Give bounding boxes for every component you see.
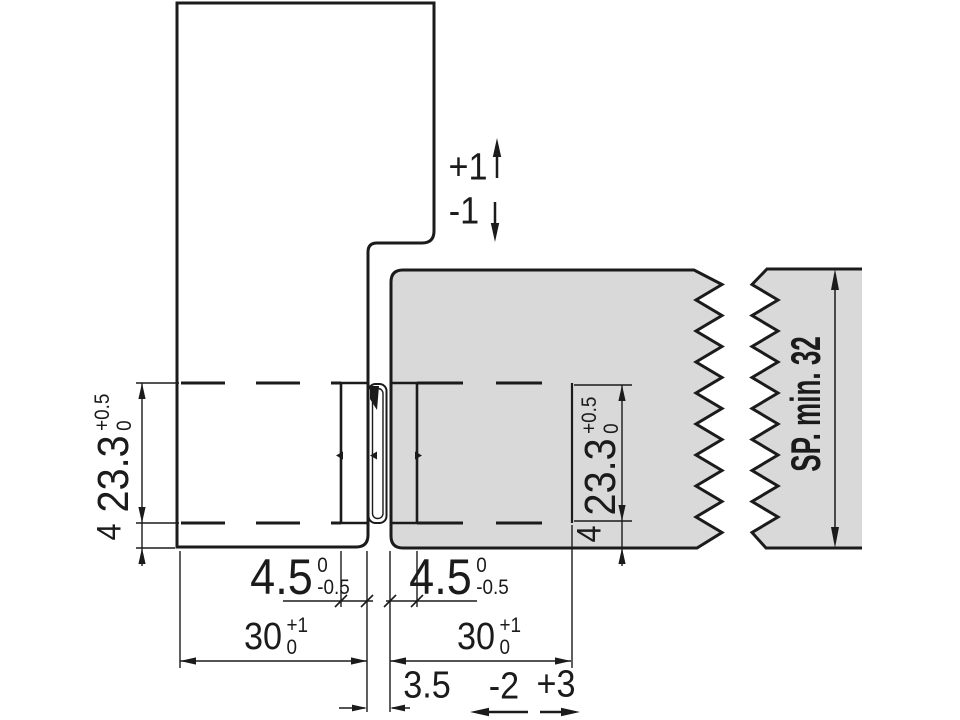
value: 3.5: [403, 665, 451, 708]
connector-profile-outer: [369, 384, 387, 523]
left-groove-height-label: 23.3 +0.5 0: [89, 394, 139, 513]
min-thickness-label: SP. min. 32: [782, 336, 830, 472]
left-width-arrow-l: [180, 657, 196, 664]
left-dim-arrow-edge: [138, 548, 145, 564]
tolerance: 0 -0.5: [476, 555, 509, 599]
horizontal-play-right-label: +3: [537, 664, 576, 707]
value: 4.5: [250, 548, 313, 606]
left-bottom-edge-label: 4: [91, 523, 130, 540]
value: 30: [244, 616, 282, 659]
right-dim-arrow-edge: [618, 548, 625, 564]
right-bottom-edge-label: 4: [571, 525, 610, 542]
tolerance-upper: +0.5: [92, 394, 114, 431]
value: 4: [91, 523, 130, 540]
technical-drawing: +1 -1 23.3 +0.5 0 4 23.3 +0.5 0 4 4.5 0 …: [0, 0, 960, 720]
tolerance-lower: -0.5: [317, 577, 350, 599]
tolerance-upper: +1: [499, 615, 521, 637]
left-dim-arrow-down: [138, 507, 145, 523]
right-groove-height-label: 23.3 +0.5 0: [576, 397, 626, 516]
tolerance: +1 0: [286, 615, 308, 659]
tolerance: +1 0: [499, 615, 521, 659]
tolerance: +0.5 0: [92, 394, 136, 431]
tolerance-upper: 0: [476, 555, 509, 577]
value: 23.3: [576, 438, 626, 515]
left-panel-width-label: 30 +1 0: [244, 615, 308, 659]
left-groove-depth-label: 4.5 0 -0.5: [250, 548, 350, 606]
gap-arrow-left: [352, 705, 367, 712]
value: -2: [489, 666, 519, 709]
tolerance-lower: 0: [286, 637, 308, 659]
tolerance-upper: +0.5: [579, 397, 601, 434]
tolerance-upper: 0: [317, 555, 350, 577]
value: -1: [449, 191, 479, 234]
top-panel: [391, 270, 722, 548]
tolerance: 0 -0.5: [317, 555, 350, 599]
horizontal-play-left-label: -2: [489, 666, 519, 709]
panel-gap-label: 3.5: [403, 665, 451, 708]
tolerance-upper: +1: [286, 615, 308, 637]
right-groove-depth-label: 4.5 0 -0.5: [409, 548, 509, 606]
tolerance-lower: 0: [601, 397, 623, 434]
vertical-play-up-label: +1: [449, 147, 488, 190]
play-left-arrow-head: [470, 708, 489, 716]
play-up-arrow-head: [493, 138, 501, 157]
value: +1: [449, 147, 488, 190]
tolerance-lower: 0: [114, 394, 136, 431]
value: +3: [537, 664, 576, 707]
play-right-arrow-head: [561, 708, 580, 716]
value: SP. min. 32: [782, 336, 830, 472]
play-down-arrow-head: [491, 223, 499, 242]
tolerance-lower: -0.5: [476, 577, 509, 599]
value: 4.5: [409, 548, 472, 606]
tolerance-lower: 0: [499, 637, 521, 659]
value: 30: [457, 616, 495, 659]
left-dim-arrow-up: [138, 383, 145, 399]
right-panel-width-label: 30 +1 0: [457, 615, 521, 659]
vertical-play-down-label: -1: [449, 191, 479, 234]
left-width-arrow-r: [351, 657, 367, 664]
value: 23.3: [89, 435, 139, 512]
tolerance: +0.5 0: [579, 397, 623, 434]
value: 4: [571, 525, 610, 542]
